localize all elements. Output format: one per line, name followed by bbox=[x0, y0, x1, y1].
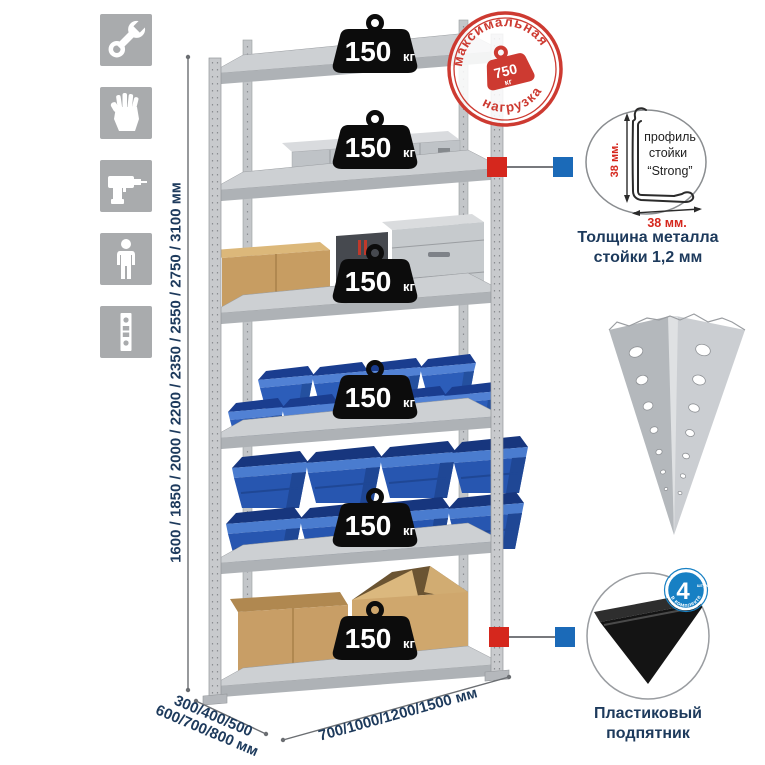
svg-text:150: 150 bbox=[345, 266, 392, 297]
shelf-load-badge: 150 кг bbox=[319, 14, 431, 78]
height-dimension-line bbox=[186, 55, 190, 692]
svg-text:38 мм.: 38 мм. bbox=[609, 143, 621, 178]
svg-text:кг: кг bbox=[403, 145, 416, 160]
foot-quantity-badge: 4 штуки в комплекте bbox=[665, 569, 711, 612]
svg-text:профиль: профиль bbox=[644, 130, 696, 144]
shelf-load-badge: 150 кг bbox=[319, 110, 431, 174]
svg-text:штуки: штуки bbox=[697, 583, 711, 588]
profile-detail-circle: 38 мм. 38 мм. профиль стойки “Strong” bbox=[586, 108, 706, 230]
svg-text:150: 150 bbox=[345, 510, 392, 541]
upright-profile-photo bbox=[609, 314, 745, 535]
svg-text:кг: кг bbox=[403, 636, 416, 651]
svg-text:кг: кг bbox=[403, 523, 416, 538]
foot-callout-connector bbox=[489, 627, 575, 647]
svg-text:150: 150 bbox=[345, 382, 392, 413]
shelf-load-badge: 150 кг bbox=[319, 488, 431, 552]
profile-caption: Толщина металла стойки 1,2 мм bbox=[566, 228, 730, 268]
shelf-load-badge: 150 кг bbox=[319, 360, 431, 424]
svg-text:стойки: стойки bbox=[649, 146, 687, 160]
svg-text:150: 150 bbox=[345, 36, 392, 67]
shelf-load-badge: 150 кг bbox=[319, 244, 431, 308]
svg-text:“Strong”: “Strong” bbox=[647, 164, 692, 178]
profile-callout-connector bbox=[487, 157, 573, 177]
svg-text:кг: кг bbox=[403, 279, 416, 294]
svg-text:150: 150 bbox=[345, 623, 392, 654]
svg-text:кг: кг bbox=[403, 395, 416, 410]
foot-detail-circle: 4 штуки в комплекте bbox=[587, 569, 711, 700]
foot-caption: Пластиковый подпятник bbox=[568, 704, 728, 744]
svg-text:150: 150 bbox=[345, 132, 392, 163]
shelving-infographic: 38 мм. 38 мм. профиль стойки “Strong” bbox=[0, 0, 765, 765]
max-load-stamp: максимальная нагрузка 750 кг bbox=[444, 8, 566, 130]
height-dimension-label: 1600 / 1850 / 2000 / 2200 / 2350 / 2550 … bbox=[168, 93, 185, 653]
svg-text:кг: кг bbox=[403, 49, 416, 64]
shelf-load-badge: 150 кг bbox=[319, 601, 431, 665]
